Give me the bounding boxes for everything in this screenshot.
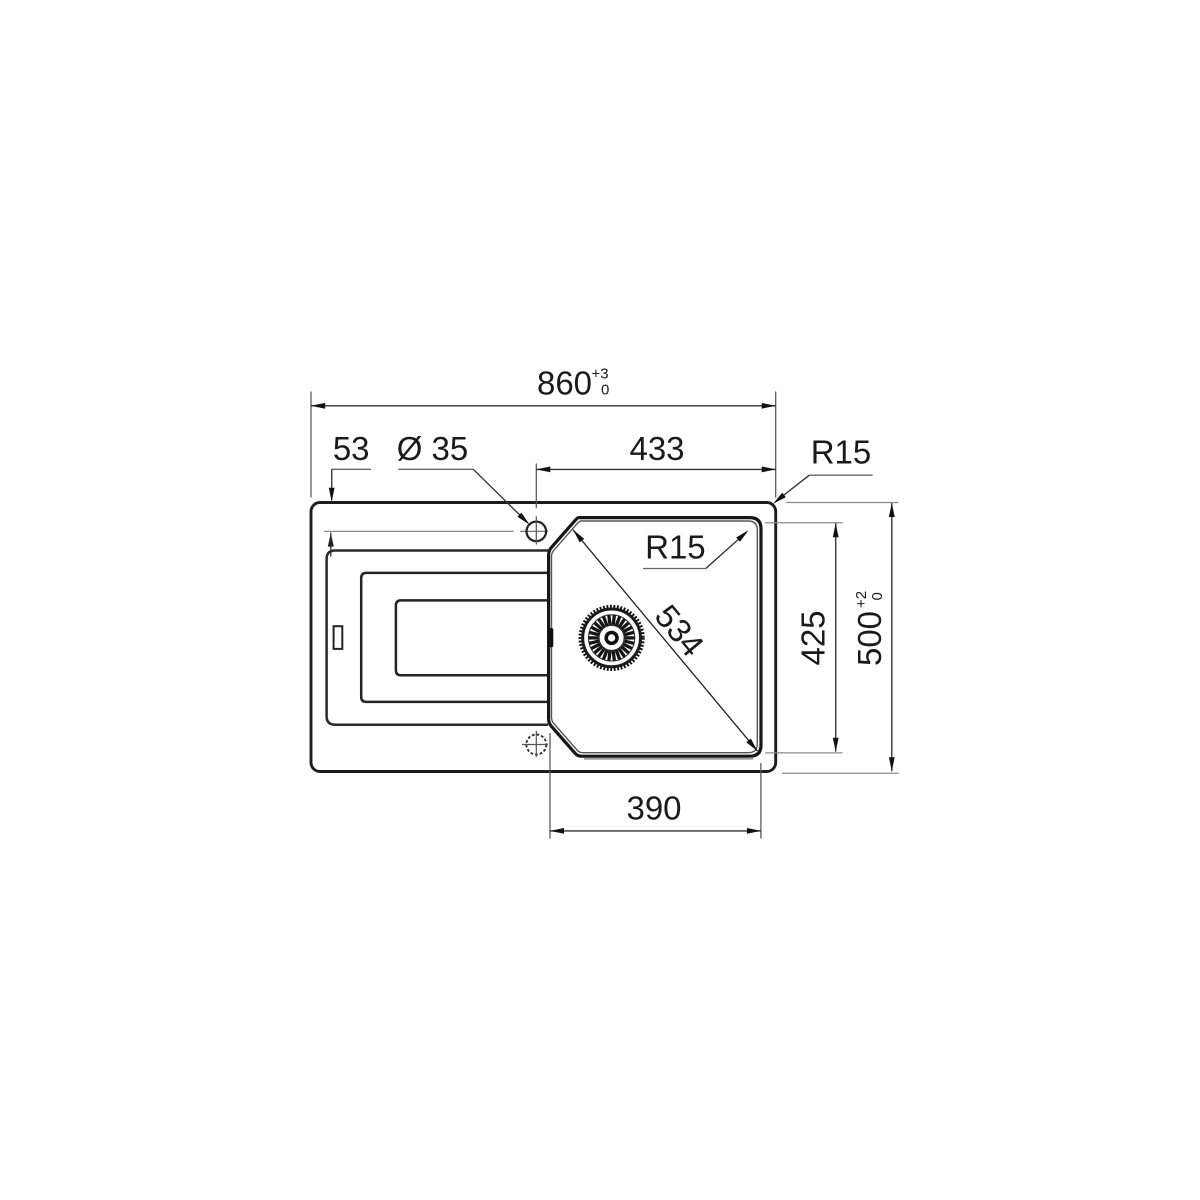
svg-text:500: 500 xyxy=(851,611,888,666)
svg-text:433: 433 xyxy=(629,430,684,467)
svg-text:0: 0 xyxy=(601,382,609,399)
svg-text:R15: R15 xyxy=(811,434,872,471)
svg-text:860: 860 xyxy=(537,365,592,402)
svg-text:R15: R15 xyxy=(645,529,706,566)
svg-text:+3: +3 xyxy=(592,366,609,383)
svg-text:+2: +2 xyxy=(853,591,870,608)
svg-text:0: 0 xyxy=(869,592,886,600)
svg-text:425: 425 xyxy=(795,610,832,665)
svg-text:390: 390 xyxy=(626,790,681,827)
svg-text:53: 53 xyxy=(333,430,370,467)
svg-text:Ø 35: Ø 35 xyxy=(397,430,469,467)
